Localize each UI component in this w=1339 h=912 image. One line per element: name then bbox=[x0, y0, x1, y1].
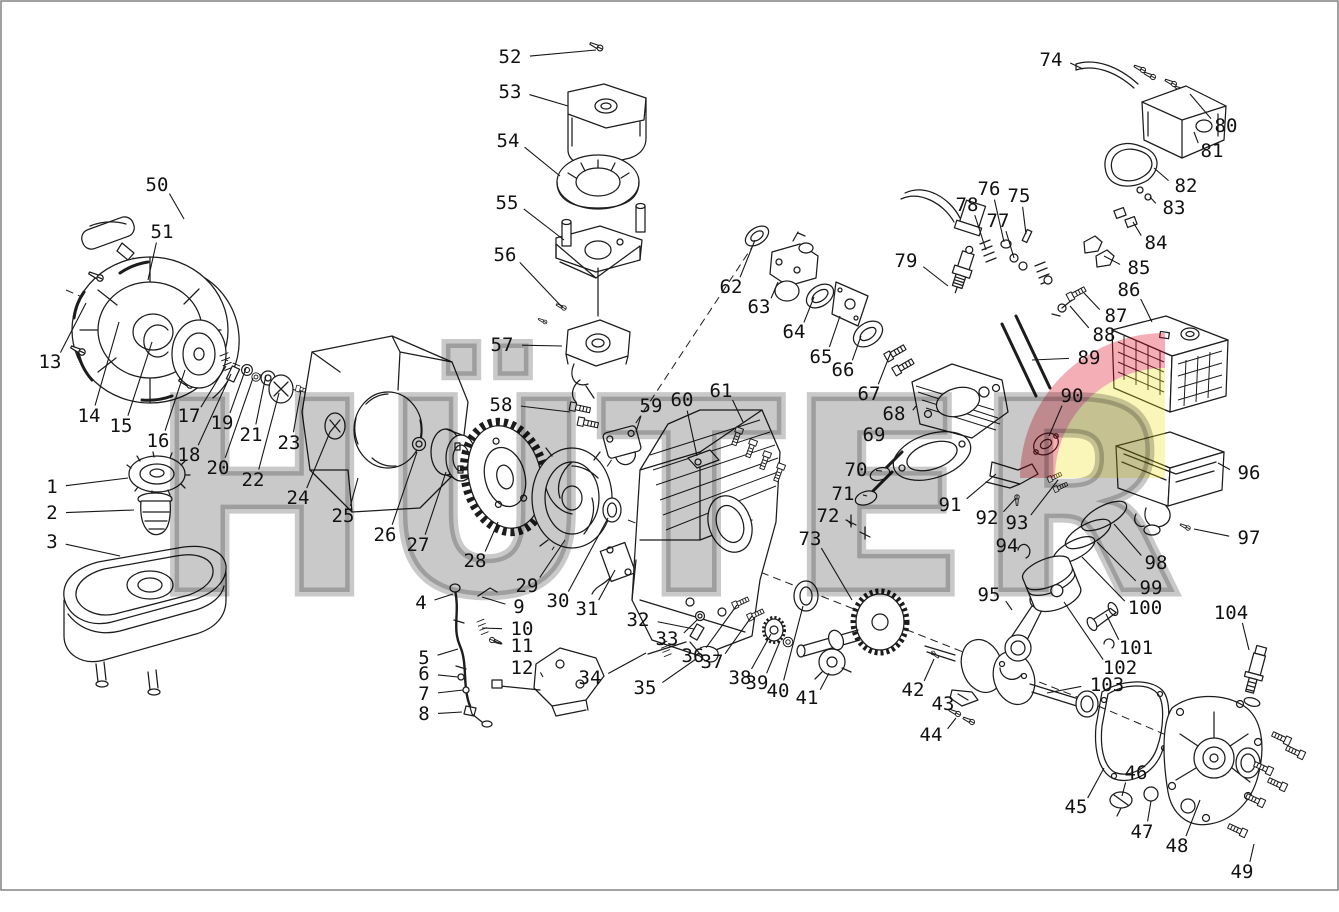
part-label-45: 45 bbox=[1065, 796, 1088, 818]
exploded-view-svg: HÜTER 1234567891011121314151617181920212… bbox=[0, 0, 1339, 912]
part-label-40: 40 bbox=[767, 680, 790, 702]
part-label-101: 101 bbox=[1119, 637, 1153, 659]
part-label-29: 29 bbox=[516, 575, 539, 597]
leader-line-44 bbox=[948, 718, 956, 729]
part-label-44: 44 bbox=[920, 724, 943, 746]
part-label-50: 50 bbox=[146, 174, 169, 196]
breather-tube bbox=[1076, 62, 1138, 88]
part-label-75: 75 bbox=[1008, 185, 1031, 207]
part-label-64: 64 bbox=[783, 321, 806, 343]
part-label-30: 30 bbox=[547, 590, 570, 612]
part-label-9: 9 bbox=[513, 596, 524, 618]
part-label-56: 56 bbox=[494, 244, 517, 266]
part-label-95: 95 bbox=[978, 584, 1001, 606]
leader-line-2 bbox=[66, 510, 134, 513]
part-label-94: 94 bbox=[996, 535, 1019, 557]
part-label-27: 27 bbox=[407, 534, 430, 556]
part-label-65: 65 bbox=[810, 346, 833, 368]
part-label-33: 33 bbox=[656, 628, 679, 650]
part-label-22: 22 bbox=[242, 469, 265, 491]
part-label-28: 28 bbox=[464, 550, 487, 572]
leader-line-70 bbox=[876, 470, 882, 471]
carb-gasket bbox=[742, 222, 772, 250]
part-label-57: 57 bbox=[491, 334, 514, 356]
cover-gasket bbox=[1105, 144, 1157, 187]
part-label-42: 42 bbox=[902, 679, 925, 701]
part-label-41: 41 bbox=[796, 687, 819, 709]
part-label-32: 32 bbox=[627, 609, 650, 631]
part-label-81: 81 bbox=[1201, 140, 1224, 162]
part-label-93: 93 bbox=[1006, 512, 1029, 534]
part-label-89: 89 bbox=[1078, 347, 1101, 369]
part-label-7: 7 bbox=[418, 683, 429, 705]
leader-line-104 bbox=[1242, 623, 1249, 650]
part-label-70: 70 bbox=[845, 459, 868, 481]
leader-line-52 bbox=[530, 50, 596, 56]
part-label-79: 79 bbox=[895, 250, 918, 272]
leader-line-62 bbox=[740, 240, 755, 277]
leader-line-97 bbox=[1194, 529, 1229, 536]
part-label-59: 59 bbox=[640, 395, 663, 417]
leader-line-54 bbox=[525, 147, 560, 176]
leader-line-88 bbox=[1070, 306, 1089, 328]
part-label-76: 76 bbox=[978, 178, 1001, 200]
leader-line-10 bbox=[482, 628, 502, 629]
leader-line-55 bbox=[524, 209, 564, 240]
leader-line-47 bbox=[1148, 801, 1151, 821]
part-label-85: 85 bbox=[1128, 257, 1151, 279]
part-label-6: 6 bbox=[418, 663, 429, 685]
leader-line-65 bbox=[829, 316, 840, 347]
part-label-12: 12 bbox=[511, 657, 534, 679]
part-label-55: 55 bbox=[496, 192, 519, 214]
starter-handle bbox=[79, 214, 137, 251]
part-label-61: 61 bbox=[710, 380, 733, 402]
part-label-72: 72 bbox=[817, 505, 840, 527]
oil-sensor bbox=[1241, 644, 1271, 708]
rocker-arm bbox=[1084, 236, 1102, 253]
leader-line-75 bbox=[1023, 207, 1026, 234]
part-label-3: 3 bbox=[46, 531, 57, 553]
part-label-104: 104 bbox=[1214, 602, 1248, 624]
rocker-arm bbox=[1096, 250, 1114, 267]
part-label-53: 53 bbox=[499, 81, 522, 103]
part-label-1: 1 bbox=[46, 476, 57, 498]
part-label-67: 67 bbox=[858, 383, 881, 405]
part-label-31: 31 bbox=[576, 598, 599, 620]
part-label-34: 34 bbox=[579, 667, 602, 689]
part-label-48: 48 bbox=[1166, 835, 1189, 857]
part-label-92: 92 bbox=[976, 507, 999, 529]
part-label-23: 23 bbox=[278, 432, 301, 454]
part-label-2: 2 bbox=[46, 502, 57, 524]
part-label-11: 11 bbox=[511, 635, 534, 657]
part-label-103: 103 bbox=[1090, 674, 1124, 696]
part-label-54: 54 bbox=[497, 130, 520, 152]
part-label-71: 71 bbox=[832, 483, 855, 505]
leader-line-34 bbox=[608, 653, 646, 674]
part-label-47: 47 bbox=[1131, 821, 1154, 843]
part-label-82: 82 bbox=[1175, 175, 1198, 197]
part-label-100: 100 bbox=[1128, 597, 1162, 619]
part-label-4: 4 bbox=[415, 592, 426, 614]
leader-line-45 bbox=[1088, 768, 1104, 798]
leader-line-49 bbox=[1250, 844, 1254, 862]
head-cover-assembly bbox=[1076, 62, 1226, 186]
part-label-77: 77 bbox=[987, 210, 1010, 232]
part-label-88: 88 bbox=[1093, 324, 1116, 346]
part-label-25: 25 bbox=[332, 505, 355, 527]
part-label-26: 26 bbox=[374, 524, 397, 546]
leader-line-8 bbox=[438, 712, 462, 713]
o-ring bbox=[1144, 787, 1158, 801]
part-label-18: 18 bbox=[178, 444, 201, 466]
leader-line-41 bbox=[820, 673, 829, 690]
part-label-8: 8 bbox=[418, 703, 429, 725]
part-label-60: 60 bbox=[671, 389, 694, 411]
parts-diagram-page: HÜTER 1234567891011121314151617181920212… bbox=[0, 0, 1339, 912]
part-label-63: 63 bbox=[748, 296, 771, 318]
part-label-39: 39 bbox=[746, 672, 769, 694]
leader-line-42 bbox=[924, 659, 934, 681]
part-label-73: 73 bbox=[799, 528, 822, 550]
part-label-84: 84 bbox=[1145, 232, 1168, 254]
leader-line-82 bbox=[1154, 168, 1169, 181]
leader-line-79 bbox=[923, 267, 948, 286]
part-label-62: 62 bbox=[720, 276, 743, 298]
part-label-74: 74 bbox=[1040, 49, 1063, 71]
part-label-80: 80 bbox=[1215, 115, 1238, 137]
part-label-13: 13 bbox=[39, 351, 62, 373]
part-label-52: 52 bbox=[499, 46, 522, 68]
part-label-37: 37 bbox=[701, 651, 724, 673]
part-label-58: 58 bbox=[490, 394, 513, 416]
part-label-16: 16 bbox=[147, 430, 170, 452]
part-label-14: 14 bbox=[78, 405, 101, 427]
leader-line-87 bbox=[1084, 293, 1100, 310]
heat-shield-plate bbox=[832, 282, 868, 326]
part-label-83: 83 bbox=[1163, 197, 1186, 219]
leader-line-3 bbox=[66, 544, 120, 556]
part-label-99: 99 bbox=[1140, 577, 1163, 599]
part-label-17: 17 bbox=[178, 405, 201, 427]
leader-line-1 bbox=[66, 478, 128, 486]
crankcase-cover-assembly bbox=[1096, 682, 1306, 838]
leader-line-53 bbox=[529, 95, 568, 106]
part-label-66: 66 bbox=[832, 359, 855, 381]
part-label-96: 96 bbox=[1238, 462, 1261, 484]
part-label-91: 91 bbox=[939, 494, 962, 516]
part-label-68: 68 bbox=[883, 403, 906, 425]
part-label-90: 90 bbox=[1061, 385, 1084, 407]
part-label-98: 98 bbox=[1145, 552, 1168, 574]
oil-filler-cap bbox=[1110, 792, 1132, 816]
part-label-49: 49 bbox=[1231, 861, 1254, 883]
leader-line-86 bbox=[1141, 299, 1152, 322]
part-label-43: 43 bbox=[932, 693, 955, 715]
leader-line-7 bbox=[438, 690, 463, 693]
part-label-86: 86 bbox=[1118, 279, 1141, 301]
leader-line-50 bbox=[169, 194, 184, 219]
leader-line-6 bbox=[438, 675, 458, 677]
part-label-19: 19 bbox=[211, 412, 234, 434]
part-label-15: 15 bbox=[110, 415, 133, 437]
part-label-21: 21 bbox=[240, 424, 263, 446]
leader-line-83 bbox=[1150, 197, 1156, 203]
part-label-46: 46 bbox=[1125, 762, 1148, 784]
leader-line-56 bbox=[520, 262, 562, 307]
part-label-24: 24 bbox=[287, 487, 310, 509]
part-label-69: 69 bbox=[863, 424, 886, 446]
part-label-78: 78 bbox=[956, 194, 979, 216]
part-label-97: 97 bbox=[1238, 527, 1261, 549]
part-label-20: 20 bbox=[207, 457, 230, 479]
part-label-35: 35 bbox=[634, 677, 657, 699]
part-label-51: 51 bbox=[151, 221, 174, 243]
